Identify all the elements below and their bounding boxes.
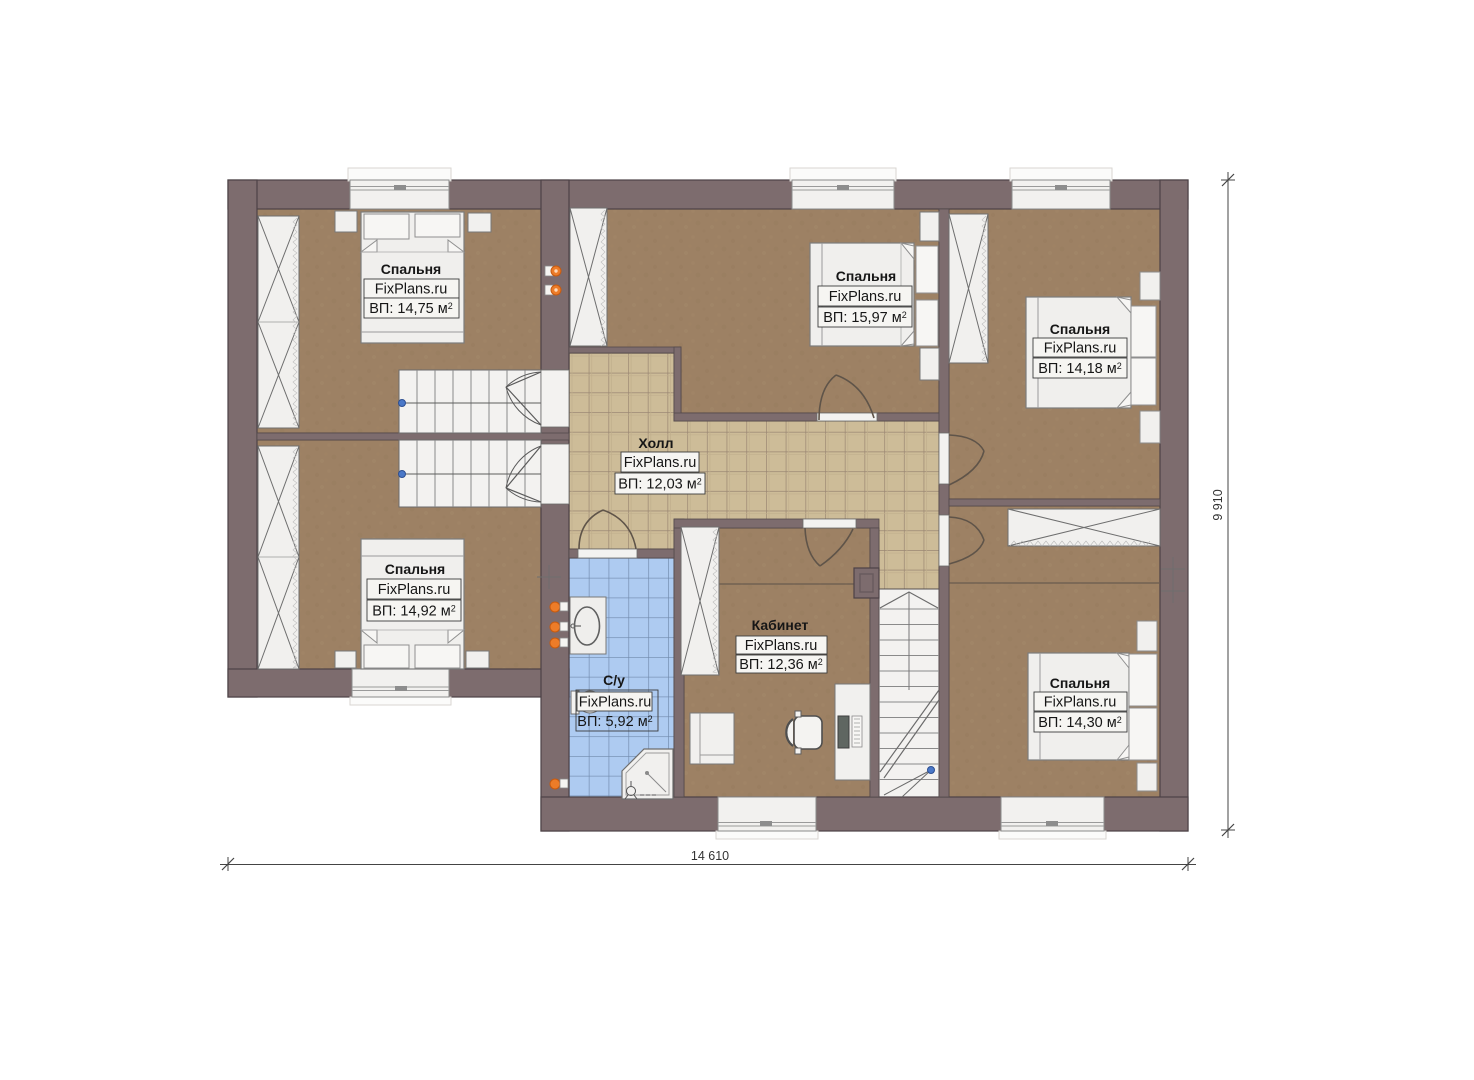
- svg-text:FixPlans.ru: FixPlans.ru: [1044, 695, 1117, 711]
- svg-text:ВП: 5,92 м2: ВП: 5,92 м2: [577, 714, 652, 730]
- svg-text:ВП: 14,18 м2: ВП: 14,18 м2: [1038, 361, 1121, 377]
- svg-text:ВП: 14,92 м2: ВП: 14,92 м2: [372, 604, 455, 620]
- svg-text:Холл: Холл: [638, 435, 673, 451]
- svg-text:ВП: 15,97 м2: ВП: 15,97 м2: [823, 310, 906, 326]
- svg-text:FixPlans.ru: FixPlans.ru: [378, 582, 451, 598]
- svg-text:FixPlans.ru: FixPlans.ru: [745, 638, 818, 654]
- svg-text:FixPlans.ru: FixPlans.ru: [829, 289, 902, 305]
- svg-text:С/у: С/у: [603, 672, 625, 688]
- svg-text:Спальня: Спальня: [381, 261, 441, 277]
- svg-text:FixPlans.ru: FixPlans.ru: [579, 695, 652, 711]
- svg-text:FixPlans.ru: FixPlans.ru: [375, 282, 448, 298]
- svg-text:9 910: 9 910: [1211, 489, 1225, 520]
- svg-text:Спальня: Спальня: [836, 268, 896, 284]
- svg-text:14 610: 14 610: [691, 849, 729, 863]
- svg-text:Кабинет: Кабинет: [752, 617, 809, 633]
- svg-text:FixPlans.ru: FixPlans.ru: [1044, 341, 1117, 357]
- svg-text:ВП: 14,75 м2: ВП: 14,75 м2: [369, 301, 452, 317]
- svg-text:ВП: 12,36 м2: ВП: 12,36 м2: [739, 657, 822, 673]
- svg-text:Спальня: Спальня: [1050, 675, 1110, 691]
- svg-text:FixPlans.ru: FixPlans.ru: [624, 455, 697, 471]
- svg-text:ВП: 12,03 м2: ВП: 12,03 м2: [618, 477, 701, 493]
- svg-text:ВП: 14,30 м2: ВП: 14,30 м2: [1038, 715, 1121, 731]
- svg-text:Спальня: Спальня: [385, 561, 445, 577]
- svg-text:Спальня: Спальня: [1050, 321, 1110, 337]
